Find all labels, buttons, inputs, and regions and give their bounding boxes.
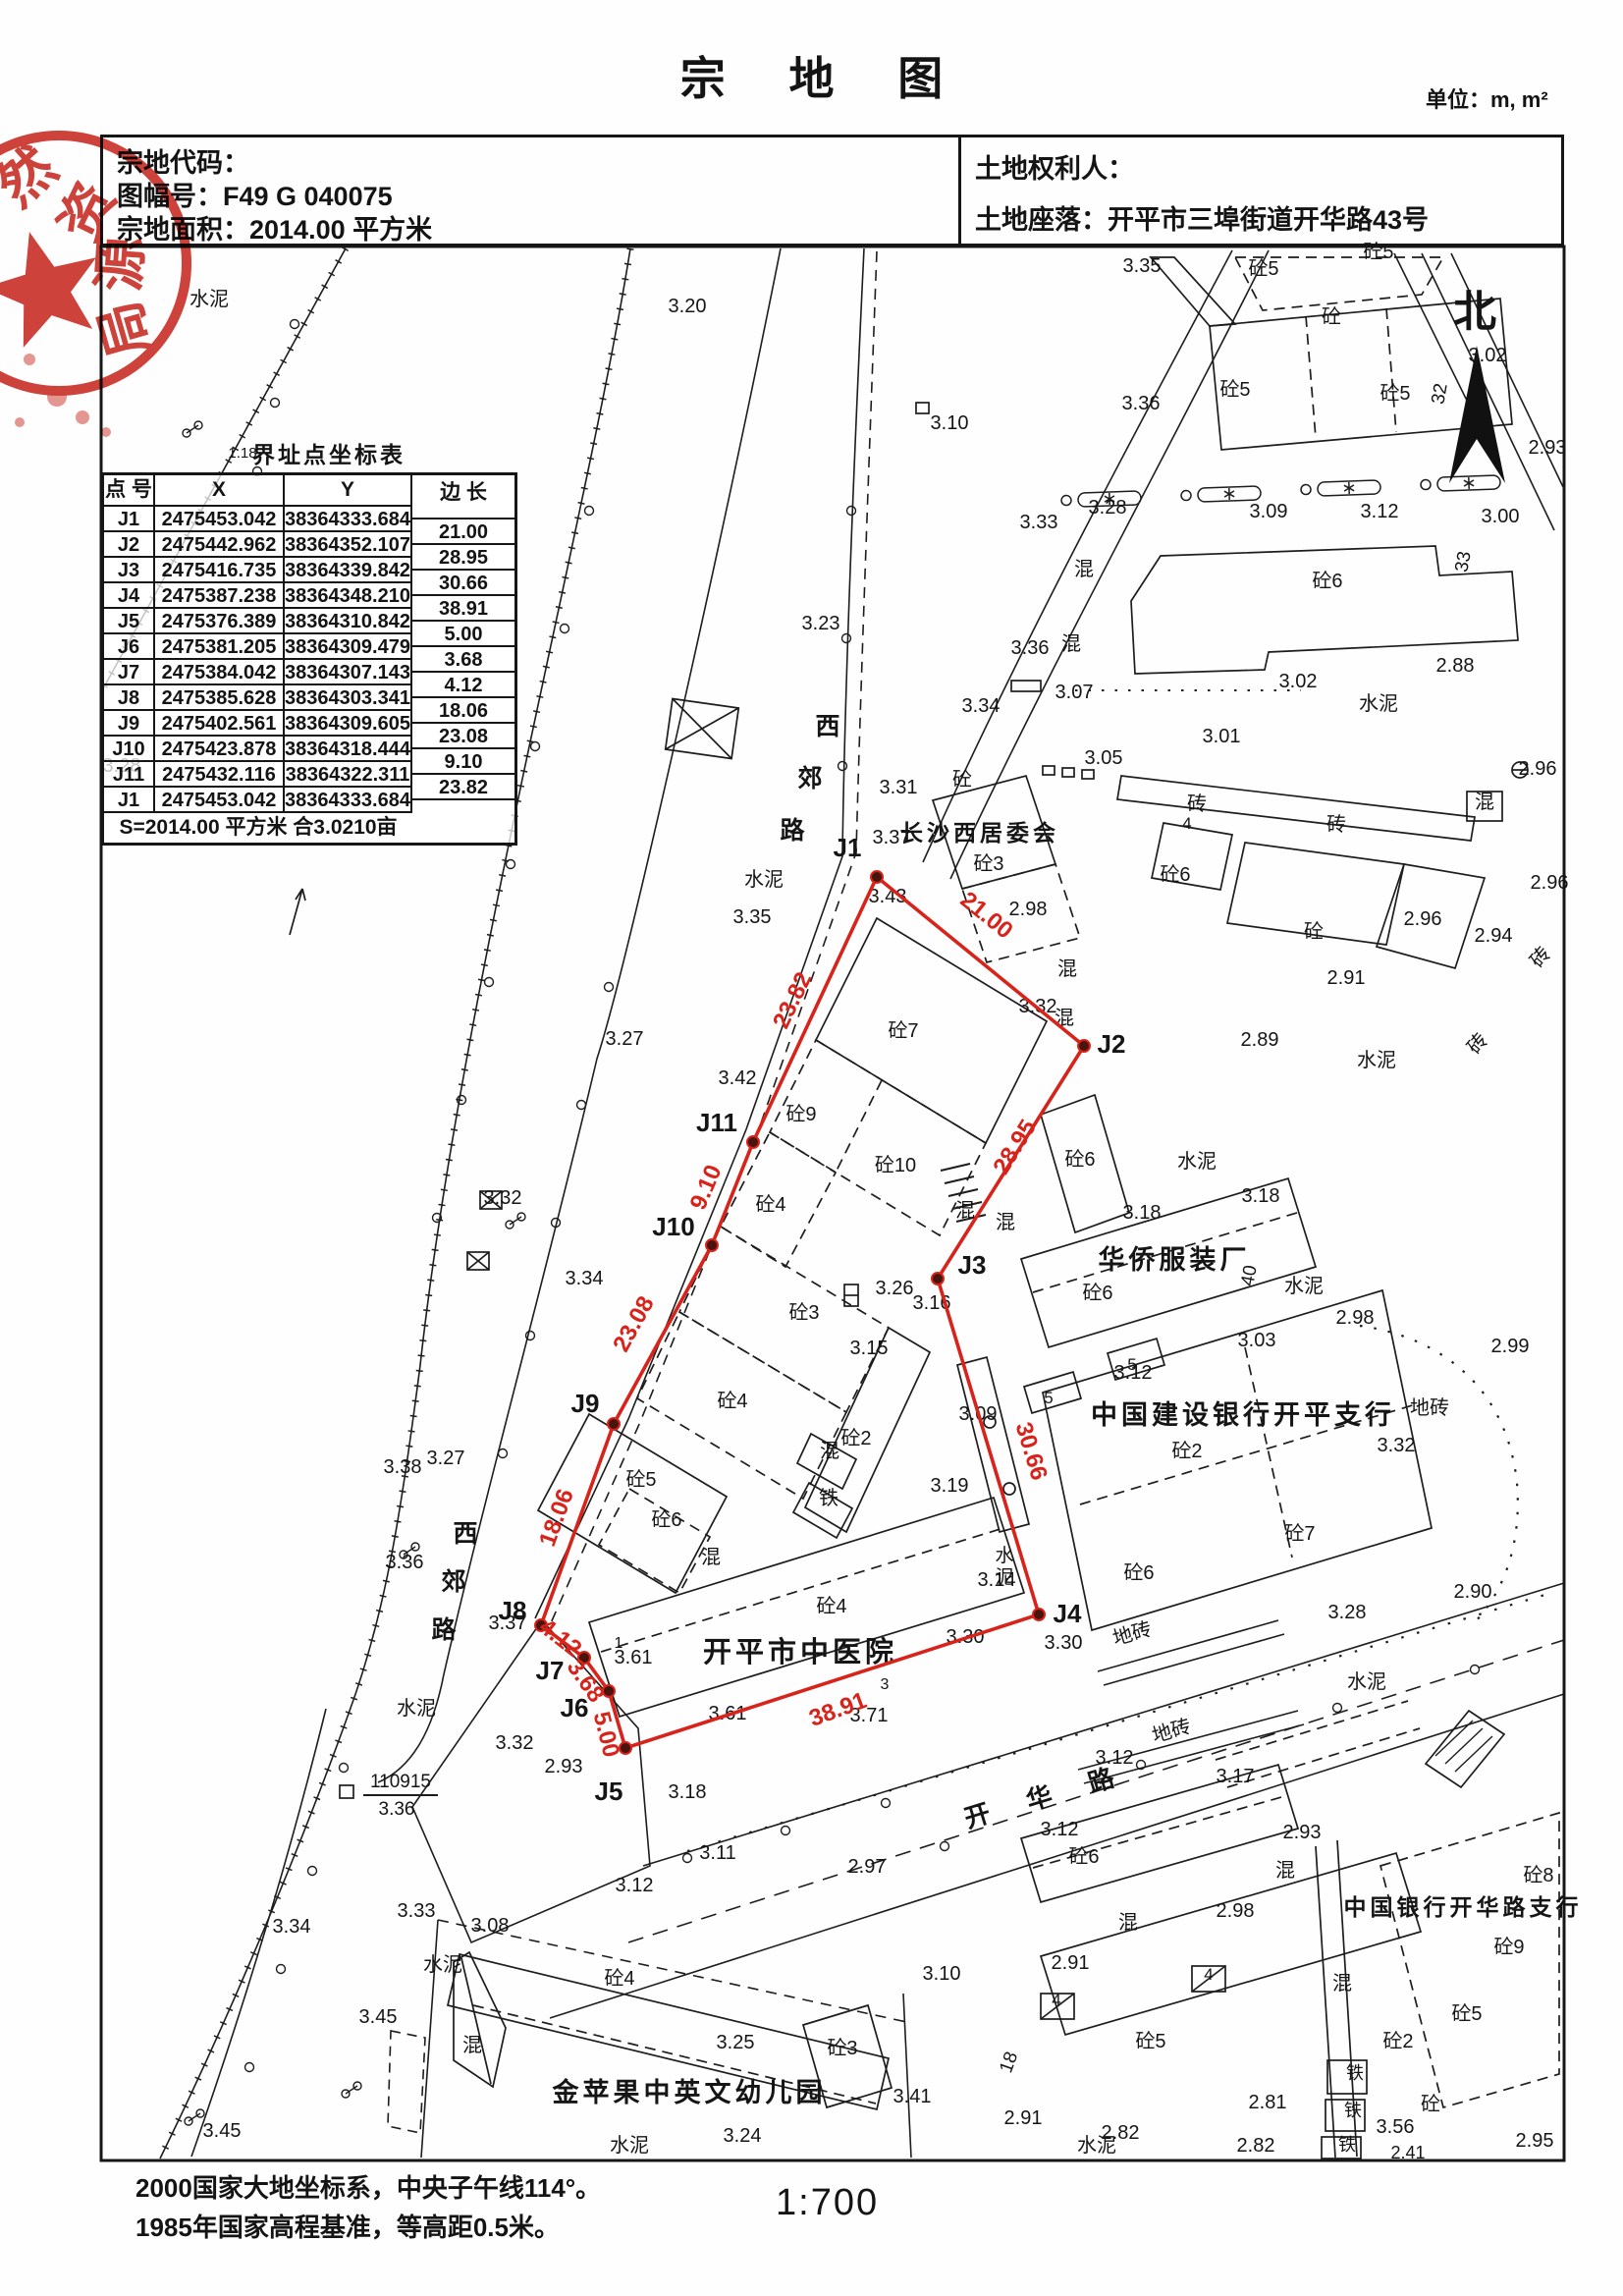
boundary-point-table: 界址点坐标表 点 号XYJ12475453.04238364333.684J22… [101,436,517,846]
table-cell: 38364318.444 [285,735,412,760]
map-label: 水泥 [610,2134,649,2157]
map-label: 砼5 [1219,378,1250,401]
map-label: 3.09 [1250,501,1288,522]
map-label: 砼5 [1248,257,1278,280]
map-label: 3.10 [923,1963,961,1985]
edge-length-cell: 23.82 [412,775,514,800]
map-label: 砼9 [785,1103,816,1125]
map-label: 砼7 [1284,1522,1315,1545]
edge-length-label: 28.95 [988,1115,1042,1178]
table-cell: J7 [104,658,155,683]
table-cell: J1 [104,505,155,530]
map-label: 3.36 [386,1552,424,1573]
map-label: 4 [1204,1965,1213,1984]
map-label: 砼3 [827,2037,857,2059]
map-label: 砼 [952,768,972,791]
map-label: 铁 [819,1487,839,1509]
map-label: 混 [462,2034,482,2056]
map-label: 4 [1052,1991,1060,2009]
table-cell: 38364352.107 [285,530,412,556]
map-label: 3.26 [876,1278,914,1299]
map-label: 3.34 [273,1916,311,1938]
boundary-point-label-J9: J9 [571,1389,600,1418]
parcel-map-document: 宗 地 图 单位：m, m² 宗地代码： 图幅号：F49 G 040075 宗地… [0,0,1623,2296]
table-cell: 38364333.684 [285,786,412,811]
map-label: 混 [1074,558,1094,580]
crossed-box-icon [666,699,739,759]
map-label: 2.90 [1454,1581,1492,1603]
map-label: 砼3 [973,852,1003,875]
map-label: 砼2 [840,1427,871,1449]
map-label: 2.96 [1519,758,1557,780]
map-label: 砖 [1326,813,1346,836]
map-label: 3.30 [1045,1632,1083,1654]
boundary-point-label-J1: J1 [834,833,862,862]
map-label: 3.20 [669,296,707,317]
map-label: 18 [996,2050,1022,2076]
map-label: 3.37 [873,827,911,848]
boundary-point-J2 [1078,1040,1090,1052]
boundary-point-label-J10: J10 [652,1212,694,1241]
map-label: 砖 [1187,793,1207,815]
seal-star [0,232,96,348]
map-label: 水泥 [744,868,784,891]
place-name-label: 西 [453,1520,481,1548]
map-label: 混 [820,1440,839,1462]
table-cell: 点 号 [104,475,155,505]
map-label: 4 [1182,814,1191,833]
datum-note-line2: 1985年国家高程基准，等高距0.5米。 [135,2208,560,2244]
place-name-label: 中国建设银行开平支行 [1091,1399,1395,1430]
map-label: 40 [1237,1264,1261,1287]
table-cell: J3 [104,556,155,581]
map-label: 3.12 [1041,1819,1079,1840]
table-cell: J5 [104,607,155,632]
map-label: 3.34 [566,1268,604,1289]
map-label: 3.27 [427,1448,465,1469]
map-label: 2.98 [1009,899,1048,920]
map-label: 5 [1127,1355,1136,1374]
map-label: 3.12 [616,1875,654,1896]
small-arrow-icon [290,889,305,935]
map-label: 3.02 [1469,345,1507,366]
boundary-point-J1 [871,871,883,883]
map-label: 水泥 [423,1953,462,1976]
map-label: 水泥 [1357,1049,1396,1071]
place-name-label: 长沙西居委会 [900,820,1059,846]
official-seal: 然资源局 [0,135,187,437]
edge-length-cell: 4.12 [412,673,514,698]
table-cell: J9 [104,709,155,735]
table-summary: S=2014.00 平方米 合3.0210亩 [104,811,412,843]
map-label: 5 [1044,1389,1053,1407]
map-label: 2.89 [1241,1029,1279,1051]
map-label: 砼 [1421,2093,1440,2115]
table-cell: 2475385.628 [155,683,285,709]
table-cell: 2475376.389 [155,607,285,632]
place-name-label: 路 [431,1616,460,1644]
table-cell: 38364333.684 [285,505,412,530]
map-label: 2.91 [1004,2107,1043,2129]
map-label: 2.96 [1531,872,1569,894]
place-name-label: 郊 [441,1568,469,1596]
map-label: 3.45 [203,2120,242,2142]
seal-character: 源 [87,235,153,294]
map-label: 混 [1332,1972,1352,1995]
map-label: 铁 [1338,2135,1356,2155]
boundary-point-J9 [608,1418,620,1430]
map-label: 砼6 [1123,1561,1154,1584]
lamp-icon [506,1213,525,1229]
place-name-label: 郊 [797,765,826,793]
place-name-label: 开 [961,1797,998,1833]
boundary-point-label-J7: J7 [536,1656,565,1685]
map-label: 3.19 [931,1475,969,1497]
map-label: 32 [1428,382,1451,406]
place-name-label: 路 [780,817,808,845]
map-label: 3.35 [1123,255,1162,277]
table-cell: 2475442.962 [155,530,285,556]
boundary-point-J11 [747,1136,759,1148]
map-label: 3.28 [1328,1602,1367,1623]
map-label: 砼5 [625,1468,656,1491]
table-cell: 2475453.042 [155,505,285,530]
table-title: 界址点坐标表 [140,436,517,469]
map-label: 3.18 [669,1781,707,1803]
map-label: 2.91 [1327,967,1366,989]
table-cell: 2475416.735 [155,556,285,581]
boundary-point-label-J4: J4 [1054,1599,1082,1628]
seal-ink-blot [76,410,89,424]
map-label: 砼6 [651,1508,681,1531]
map-label: 2.93 [545,1756,583,1777]
table-cell: 2475384.042 [155,658,285,683]
map-label: 砼6 [1312,570,1342,592]
map-label: 砼5 [1363,241,1393,263]
map-label: 砼 [1304,920,1324,943]
map-label: 砼4 [717,1390,747,1412]
map-label: 3.15 [850,1338,889,1359]
edge-length-cell: 21.00 [412,519,514,545]
map-label: 3.32 [496,1732,534,1754]
map-label: 2.82 [1237,2135,1275,2157]
map-label: 铁 [1344,2101,1362,2120]
map-label: 3.05 [1085,747,1123,769]
map-label: 3.25 [717,2032,755,2053]
edge-length-cell: 5.00 [412,622,514,647]
map-label: 水泥 [397,1697,436,1720]
edge-length-cell: 18.06 [412,698,514,724]
map-label: 水泥 [1177,1150,1217,1173]
map-label: 砼10 [875,1154,916,1176]
map-label: 水泥 [1359,692,1398,715]
table-cell: J10 [104,735,155,760]
map-label: 地砖 [1150,1715,1194,1747]
table-cell: J11 [104,760,155,786]
place-name-label: 金苹果中英文幼儿园 [552,2077,827,2107]
map-label: 砼6 [1160,863,1190,886]
map-label: 3.00 [1482,506,1520,527]
map-label: 砼4 [816,1595,846,1617]
table-cell: 38364339.842 [285,556,412,581]
map-label: 混 [1118,1911,1138,1934]
map-label: 混 [1057,957,1077,980]
lamp-icon [185,2109,204,2125]
map-label: 3.27 [606,1028,644,1050]
map-label: 砼6 [1082,1282,1112,1304]
map-label: 2.93 [1529,437,1567,459]
map-label: 3.07 [1055,682,1094,703]
map-label: 33 [1451,550,1475,574]
edge-length-cell: 3.68 [412,647,514,673]
table-cell: 38364348.210 [285,581,412,607]
edge-length-cell: 30.66 [412,571,514,596]
map-label: 3 [881,1676,890,1693]
map-label: 3.31 [880,777,918,798]
table-cell: X [155,475,285,505]
map-label: 3.34 [962,695,1001,717]
edge-length-cell: 28.95 [412,545,514,571]
lamp-icon [342,2082,361,2098]
place-name-label: 华侨服装厂 [1099,1244,1251,1275]
table-grid: 点 号XYJ12475453.04238364333.684J22475442.… [104,475,412,843]
table-cell: 38364303.341 [285,683,412,709]
map-label: 铁 [1346,2063,1364,2083]
map-label: 水 [995,1545,1013,1566]
map-label: 3.10 [931,412,969,434]
map-label: 砖 [1526,943,1555,972]
map-label: 3.42 [719,1067,757,1089]
map-label: 水泥 [189,288,229,310]
map-label: 3.01 [1203,726,1241,747]
table-cell: J2 [104,530,155,556]
place-name-label: 中国银行开华路支行 [1344,1894,1583,1920]
map-label: 地砖 [1410,1396,1449,1419]
map-label: 3.35 [733,906,772,928]
edge-length-cell: 9.10 [412,749,514,775]
map-label: 3.32 [484,1187,522,1209]
map-label: 2.93 [1283,1822,1322,1843]
map-label: 3.12 [1096,1747,1134,1769]
map-label: 砼5 [1451,2002,1482,2025]
seal-ink-blot [47,387,67,407]
map-label: 2.81 [1249,2092,1287,2113]
table-cell: 2475381.205 [155,632,285,658]
map-label: 混 [1061,632,1081,655]
map-label: 水泥 [1347,1670,1386,1693]
place-name-label: 西 [815,713,843,740]
map-label: 2.95 [1516,2130,1554,2152]
map-label: 2.94 [1475,925,1513,947]
lamp-icon [183,421,202,437]
map-label: 砖 [1463,1029,1492,1059]
map-label: 2.98 [1217,1900,1255,1922]
datum-note-line1: 2000国家大地坐标系，中央子午线114°。 [135,2168,601,2205]
map-label: 砼4 [604,1967,634,1990]
map-label: 混 [996,1211,1015,1233]
boundary-point-J10 [706,1239,718,1251]
map-label: 3.18 [1242,1185,1280,1207]
map-label: 2.91 [1052,1952,1090,1974]
edge-length-cell: 23.08 [412,724,514,749]
table-cell: 38364309.605 [285,709,412,735]
table-cell: 2475402.561 [155,709,285,735]
table-cell: J1 [104,786,155,811]
map-label: 3.45 [359,2006,398,2028]
map-label: 水泥 [1284,1275,1324,1297]
benchmark-label: 3.36 [379,1799,415,1820]
place-name-label: 北 [1453,288,1500,336]
map-label: 2.41 [1390,2143,1425,2162]
place-name-label: 华 [1023,1779,1059,1816]
table-cell: 38364310.842 [285,607,412,632]
map-label: 混 [701,1546,721,1568]
map-label: 2.88 [1436,655,1475,677]
map-label: 砼6 [1064,1148,1095,1171]
map-label: 3.08 [471,1915,510,1937]
map-label: 3.14 [978,1569,1016,1591]
table-cell: J8 [104,683,155,709]
benchmark-label: 110915 [370,1772,431,1792]
table-cell: 38364322.311 [285,760,412,786]
boundary-point-label-J11: J11 [696,1108,737,1137]
map-label: 2.99 [1491,1336,1530,1357]
map-label: 3.38 [384,1456,422,1478]
map-label: 3.24 [724,2125,762,2147]
edge-length-header: 边 长 [412,475,514,519]
map-label: 3.28 [1089,497,1127,519]
map-label: 砼8 [1523,1864,1553,1886]
map-label: 砼9 [1493,1936,1524,1958]
map-label: 3.17 [1217,1766,1255,1787]
map-label: 3.23 [802,613,840,634]
map-label: 2.82 [1102,2122,1140,2144]
map-label: 混 [1475,791,1494,813]
map-label: 混 [955,1199,975,1222]
map-label: 2.98 [1336,1307,1375,1329]
map-label: 砼4 [755,1193,785,1216]
map-label: 砼5 [1380,382,1410,405]
map-label: 3.32 [1378,1435,1416,1456]
map-label: 3.36 [1011,637,1050,659]
map-label: 3.56 [1377,2116,1415,2138]
place-name-label: 开平市中医院 [703,1635,897,1668]
boundary-point-J4 [1033,1609,1045,1620]
table-cell: 2475423.878 [155,735,285,760]
boundary-point-label-J2: J2 [1098,1029,1126,1059]
edge-length-label: 9.10 [685,1161,728,1214]
map-label: 混 [1275,1859,1295,1882]
boundary-point-label-J5: J5 [595,1777,623,1806]
map-label: 3.11 [699,1842,735,1864]
table-cell: 38364307.143 [285,658,412,683]
cadastral-map: 长沙西居委会华侨服装厂中国建设银行开平支行开平市中医院金苹果中英文幼儿园中国银行… [0,0,1623,2296]
map-label: 砼2 [1382,2030,1413,2052]
map-label: 3.41 [893,2086,932,2107]
map-label: 砼 [1322,305,1341,328]
map-label: 砼5 [1135,2030,1165,2052]
seal-ink-blot [15,417,25,427]
table-cell: J6 [104,632,155,658]
table-cell: 2475453.042 [155,786,285,811]
edge-length-label: 23.08 [608,1292,660,1357]
map-label: 砼2 [1171,1440,1202,1462]
map-label: 3.02 [1279,671,1318,692]
map-label: 3.33 [398,1900,436,1922]
table-cell: J4 [104,581,155,607]
map-label: 砼6 [1068,1845,1099,1868]
map-scale: 1:700 [776,2182,879,2224]
map-label: 3.03 [1238,1330,1276,1351]
map-label: 3.33 [1020,512,1058,533]
edge-length-cell: 38.91 [412,596,514,622]
table-cell: Y [285,475,412,505]
map-label: 3.18 [1123,1202,1162,1224]
north-arrow [1449,346,1505,483]
map-label: 砼3 [788,1301,819,1324]
map-label: 3.36 [1122,393,1161,414]
map-label: 2.96 [1404,908,1442,930]
boundary-point-label-J3: J3 [958,1250,987,1280]
map-label: 1 [615,1635,623,1652]
table-cell: 2475432.116 [155,760,285,786]
edge-length-label: 21.00 [955,887,1018,945]
map-label: 3.12 [1361,501,1399,522]
map-label: 2.97 [848,1856,887,1878]
edge-length-column: 边 长21.0028.9530.6638.915.003.684.1218.06… [412,475,514,800]
seal-ink-blot [24,354,35,365]
boundary-point-label-J8: J8 [499,1596,527,1625]
table-cell: 38364309.479 [285,632,412,658]
table-cell: 2475387.238 [155,581,285,607]
map-label: 砼7 [888,1019,918,1042]
boundary-point-J3 [932,1273,944,1285]
